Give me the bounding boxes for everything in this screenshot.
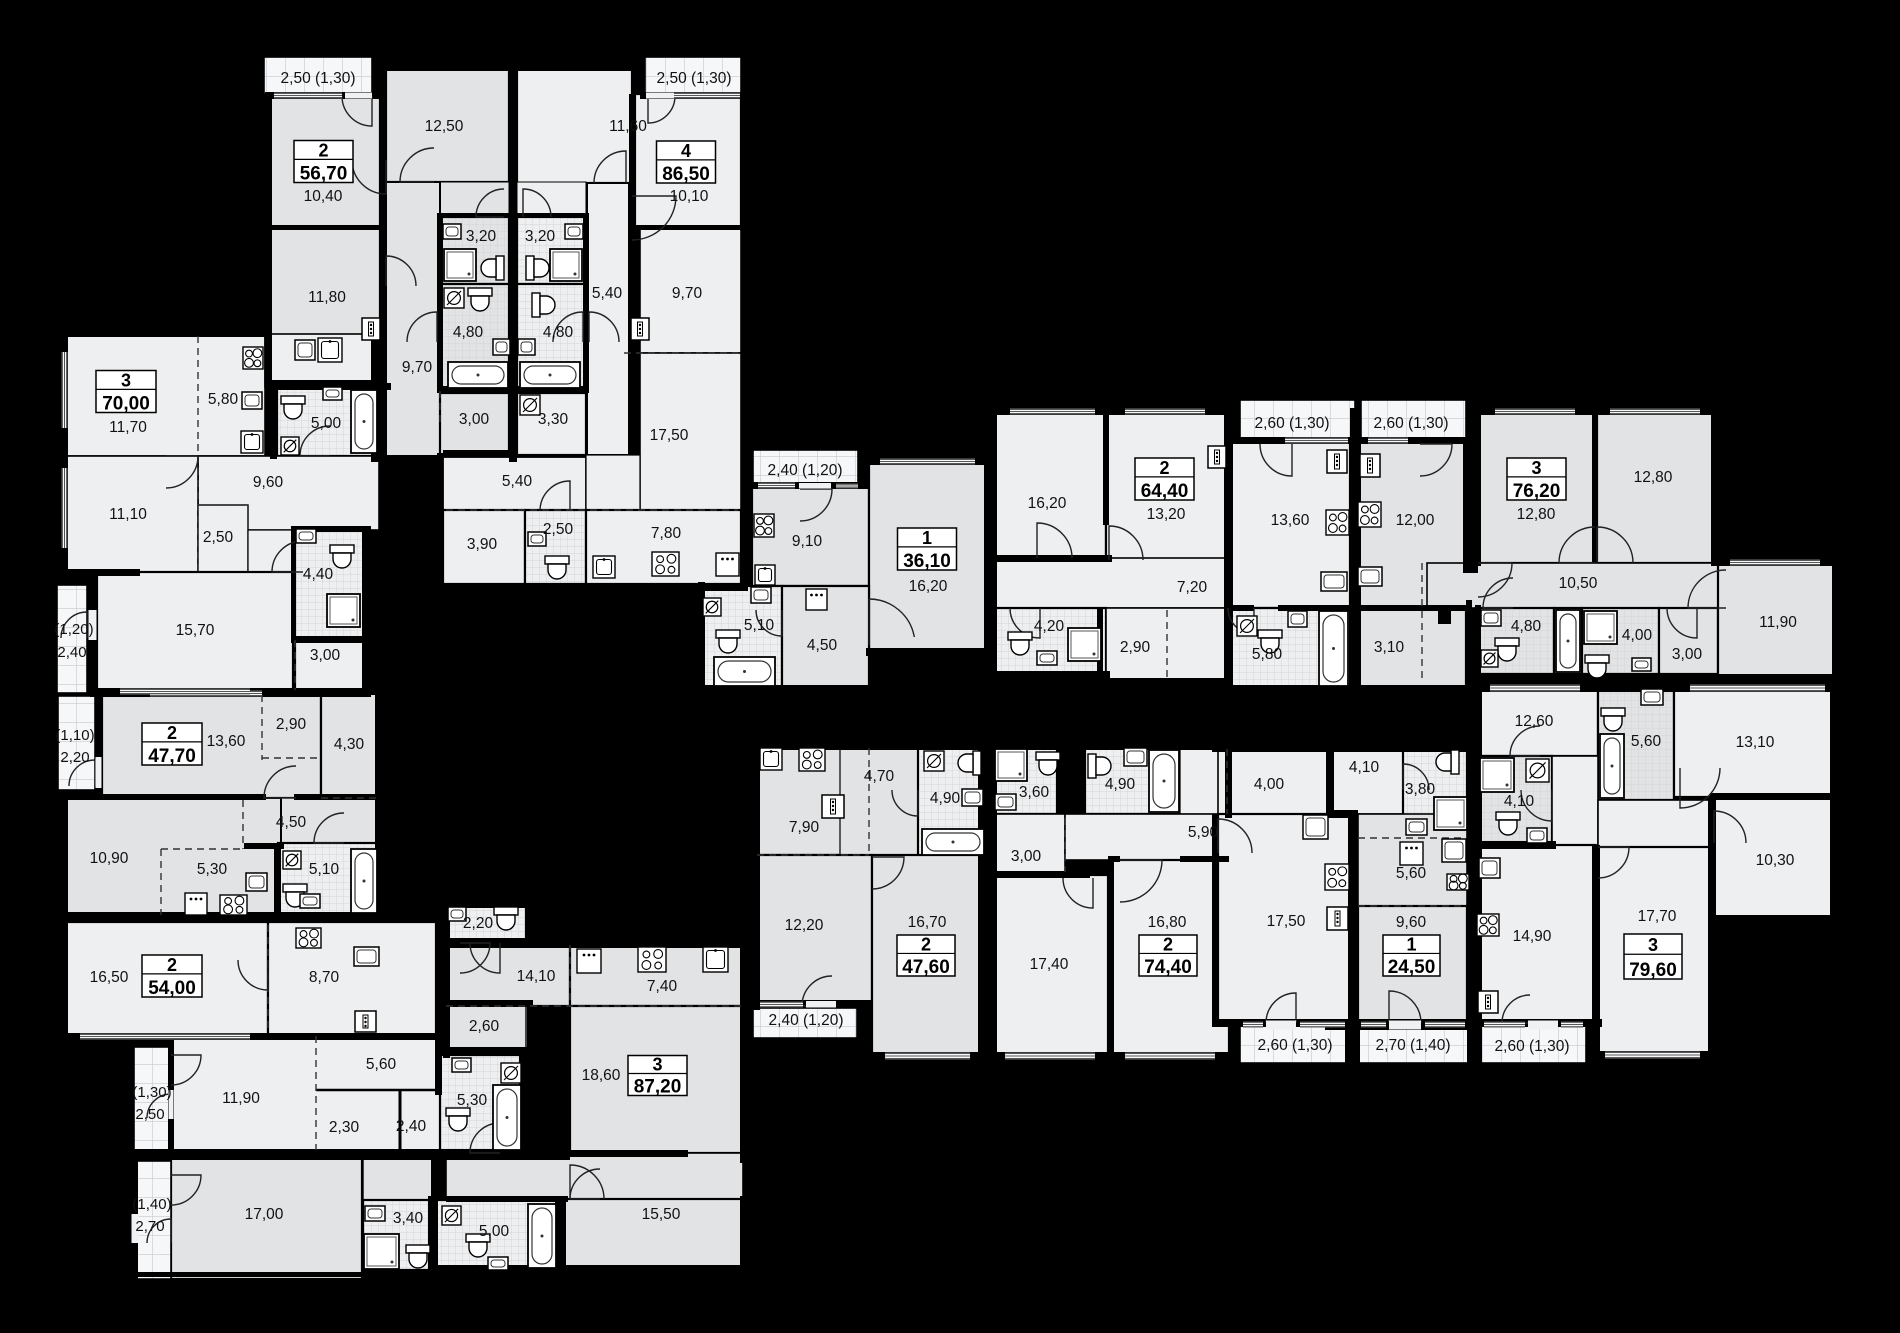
svg-text:2: 2	[318, 140, 328, 160]
svg-text:5,10: 5,10	[309, 861, 340, 878]
svg-text:(1,20): (1,20)	[54, 621, 93, 638]
svg-text:12,80: 12,80	[1517, 506, 1556, 523]
svg-text:13,60: 13,60	[1271, 512, 1310, 529]
svg-text:8,70: 8,70	[309, 969, 340, 986]
svg-text:47,70: 47,70	[148, 746, 196, 767]
svg-text:5,00: 5,00	[311, 415, 342, 432]
svg-text:11,10: 11,10	[109, 506, 147, 523]
svg-text:2,40: 2,40	[396, 1118, 427, 1135]
svg-text:2,60 (1,30): 2,60 (1,30)	[1495, 1038, 1570, 1055]
svg-text:4,20: 4,20	[1034, 618, 1065, 635]
svg-text:2,60: 2,60	[469, 1018, 500, 1035]
svg-text:9,70: 9,70	[402, 359, 433, 376]
svg-text:5,30: 5,30	[457, 1092, 488, 1109]
svg-text:2: 2	[1163, 935, 1173, 955]
svg-text:3,00: 3,00	[459, 411, 490, 428]
svg-text:1: 1	[1406, 935, 1416, 955]
svg-text:3,00: 3,00	[310, 647, 341, 664]
svg-text:9,60: 9,60	[253, 474, 284, 491]
svg-text:7,80: 7,80	[651, 525, 682, 542]
svg-text:4,80: 4,80	[453, 324, 484, 341]
svg-text:11,80: 11,80	[308, 289, 346, 306]
svg-text:10,40: 10,40	[304, 188, 343, 205]
svg-text:2,20: 2,20	[60, 749, 89, 766]
svg-text:2,40 (1,20): 2,40 (1,20)	[768, 462, 843, 479]
svg-text:2,40 (1,20): 2,40 (1,20)	[769, 1012, 844, 1029]
svg-text:2: 2	[921, 935, 931, 955]
svg-text:16,20: 16,20	[909, 578, 948, 595]
svg-text:3,40: 3,40	[393, 1210, 424, 1227]
svg-text:2,20: 2,20	[463, 915, 494, 932]
svg-text:7,40: 7,40	[647, 978, 678, 995]
svg-text:1: 1	[922, 528, 932, 548]
svg-text:74,40: 74,40	[1144, 957, 1192, 978]
svg-text:5,00: 5,00	[479, 1223, 510, 1240]
svg-text:4,90: 4,90	[1105, 776, 1136, 793]
svg-text:3,00: 3,00	[1672, 646, 1703, 663]
svg-text:4,10: 4,10	[1349, 759, 1380, 776]
svg-text:3,90: 3,90	[467, 536, 498, 553]
svg-text:3,10: 3,10	[1374, 639, 1405, 656]
svg-text:9,10: 9,10	[792, 533, 823, 550]
svg-text:12,50: 12,50	[425, 118, 464, 135]
svg-text:18,60: 18,60	[582, 1067, 621, 1084]
svg-text:56,70: 56,70	[300, 164, 348, 185]
svg-text:7,90: 7,90	[789, 819, 820, 836]
svg-text:76,20: 76,20	[1513, 481, 1561, 502]
svg-text:17,00: 17,00	[245, 1206, 284, 1223]
svg-text:2,60 (1,30): 2,60 (1,30)	[1255, 415, 1330, 432]
svg-text:11,70: 11,70	[109, 419, 147, 436]
svg-text:3: 3	[1648, 935, 1658, 955]
svg-text:4,30: 4,30	[334, 736, 365, 753]
svg-text:14,10: 14,10	[517, 968, 556, 985]
svg-text:10,10: 10,10	[670, 188, 709, 205]
svg-text:9,60: 9,60	[1396, 914, 1427, 931]
svg-text:2,50: 2,50	[135, 1106, 164, 1123]
svg-text:10,90: 10,90	[90, 850, 129, 867]
svg-text:2,50: 2,50	[543, 521, 574, 538]
svg-text:17,50: 17,50	[1267, 913, 1306, 930]
svg-text:36,10: 36,10	[903, 551, 951, 572]
svg-text:12,20: 12,20	[785, 917, 824, 934]
svg-text:24,50: 24,50	[1388, 957, 1436, 978]
svg-text:2,70 (1,40): 2,70 (1,40)	[1376, 1037, 1451, 1054]
svg-text:4,50: 4,50	[807, 637, 838, 654]
svg-text:13,10: 13,10	[1736, 734, 1775, 751]
svg-text:12,00: 12,00	[1396, 512, 1435, 529]
svg-text:13,20: 13,20	[1147, 506, 1186, 523]
svg-text:17,70: 17,70	[1638, 908, 1677, 925]
svg-text:3: 3	[1531, 458, 1541, 478]
svg-text:2,70: 2,70	[135, 1218, 164, 1235]
svg-text:10,30: 10,30	[1756, 852, 1795, 869]
svg-text:4,50: 4,50	[276, 814, 307, 831]
svg-text:4: 4	[681, 141, 691, 161]
svg-text:64,40: 64,40	[1141, 481, 1189, 502]
svg-text:5,60: 5,60	[366, 1056, 397, 1073]
svg-text:5,60: 5,60	[1396, 865, 1427, 882]
svg-text:16,80: 16,80	[1148, 914, 1187, 931]
svg-text:3: 3	[652, 1055, 662, 1075]
svg-text:2,90: 2,90	[276, 716, 307, 733]
svg-text:12,80: 12,80	[1634, 469, 1673, 486]
svg-text:13,60: 13,60	[207, 733, 246, 750]
svg-text:2,60 (1,30): 2,60 (1,30)	[1258, 1037, 1333, 1054]
svg-text:4,00: 4,00	[1622, 627, 1653, 644]
svg-text:70,00: 70,00	[102, 394, 150, 415]
svg-text:14,90: 14,90	[1513, 928, 1552, 945]
svg-text:2: 2	[167, 955, 177, 975]
svg-text:5,60: 5,60	[1631, 733, 1662, 750]
svg-text:3,00: 3,00	[1011, 848, 1042, 865]
svg-text:5,40: 5,40	[592, 285, 623, 302]
svg-text:2,50 (1,30): 2,50 (1,30)	[657, 70, 732, 87]
svg-text:86,50: 86,50	[662, 164, 710, 185]
svg-text:5,30: 5,30	[197, 861, 228, 878]
svg-text:4,90: 4,90	[930, 790, 961, 807]
svg-text:5,80: 5,80	[208, 391, 239, 408]
svg-text:12,60: 12,60	[1515, 713, 1554, 730]
svg-text:2: 2	[1159, 458, 1169, 478]
svg-text:5,10: 5,10	[744, 617, 775, 634]
svg-text:4,70: 4,70	[864, 768, 895, 785]
svg-text:11,60: 11,60	[609, 118, 647, 135]
svg-text:15,70: 15,70	[176, 622, 215, 639]
svg-text:2,50 (1,30): 2,50 (1,30)	[281, 70, 356, 87]
svg-text:7,20: 7,20	[1177, 579, 1208, 596]
svg-text:10,50: 10,50	[1559, 575, 1598, 592]
svg-text:4,40: 4,40	[303, 566, 334, 583]
svg-text:54,00: 54,00	[148, 978, 196, 999]
svg-text:9,70: 9,70	[672, 285, 703, 302]
svg-text:2,30: 2,30	[329, 1119, 360, 1136]
svg-text:11,90: 11,90	[1759, 614, 1797, 631]
svg-text:16,50: 16,50	[90, 969, 129, 986]
svg-text:3,60: 3,60	[1019, 784, 1050, 801]
svg-text:17,50: 17,50	[650, 427, 689, 444]
svg-text:3,20: 3,20	[466, 228, 497, 245]
svg-text:17,40: 17,40	[1030, 956, 1069, 973]
svg-text:15,50: 15,50	[642, 1206, 681, 1223]
svg-text:3: 3	[121, 370, 131, 390]
svg-text:5,80: 5,80	[1252, 646, 1283, 663]
svg-text:79,60: 79,60	[1629, 960, 1677, 981]
svg-text:3,80: 3,80	[1405, 781, 1436, 798]
svg-text:87,20: 87,20	[634, 1077, 682, 1098]
svg-text:3,20: 3,20	[525, 228, 556, 245]
svg-text:11,90: 11,90	[222, 1090, 260, 1107]
svg-text:4,80: 4,80	[1511, 618, 1542, 635]
svg-text:2: 2	[167, 723, 177, 743]
svg-text:(1,30): (1,30)	[132, 1084, 171, 1101]
svg-text:5,90: 5,90	[1188, 824, 1219, 841]
svg-text:5,40: 5,40	[502, 473, 533, 490]
svg-text:3,30: 3,30	[538, 411, 569, 428]
svg-text:16,70: 16,70	[908, 914, 947, 931]
svg-text:4,80: 4,80	[543, 324, 574, 341]
svg-text:2,50: 2,50	[203, 529, 234, 546]
svg-text:4,10: 4,10	[1504, 793, 1535, 810]
svg-text:16,20: 16,20	[1028, 495, 1067, 512]
svg-text:4,00: 4,00	[1254, 776, 1285, 793]
svg-text:(1,10): (1,10)	[55, 727, 94, 744]
svg-text:2,60 (1,30): 2,60 (1,30)	[1374, 415, 1449, 432]
svg-text:(1,40): (1,40)	[132, 1196, 171, 1213]
svg-text:47,60: 47,60	[902, 957, 950, 978]
svg-text:2,90: 2,90	[1120, 639, 1151, 656]
svg-text:2,40: 2,40	[57, 644, 86, 661]
